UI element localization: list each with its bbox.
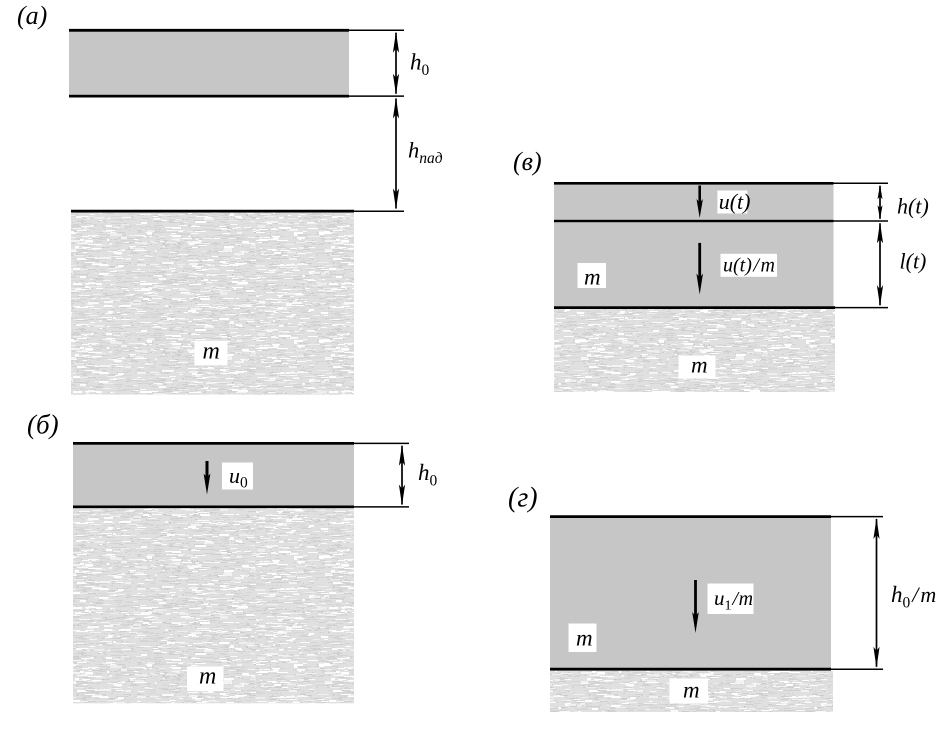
svg-text:(б): (б) [27, 410, 59, 440]
svg-text:m: m [683, 678, 700, 703]
svg-text:u1/m: u1/m [714, 586, 753, 614]
svg-text:(а): (а) [17, 1, 47, 30]
svg-text:m: m [203, 339, 220, 365]
svg-text:u(t)/m: u(t)/m [723, 255, 775, 277]
svg-text:(г): (г) [508, 483, 538, 514]
svg-text:(в): (в) [513, 147, 542, 176]
svg-text:m: m [584, 265, 601, 290]
svg-text:m: m [199, 664, 216, 690]
svg-text:u(t): u(t) [719, 189, 751, 214]
svg-text:l(t): l(t) [900, 249, 927, 274]
svg-text:m: m [691, 353, 708, 378]
svg-text:m: m [576, 626, 593, 651]
svg-text:h(t): h(t) [897, 194, 929, 219]
